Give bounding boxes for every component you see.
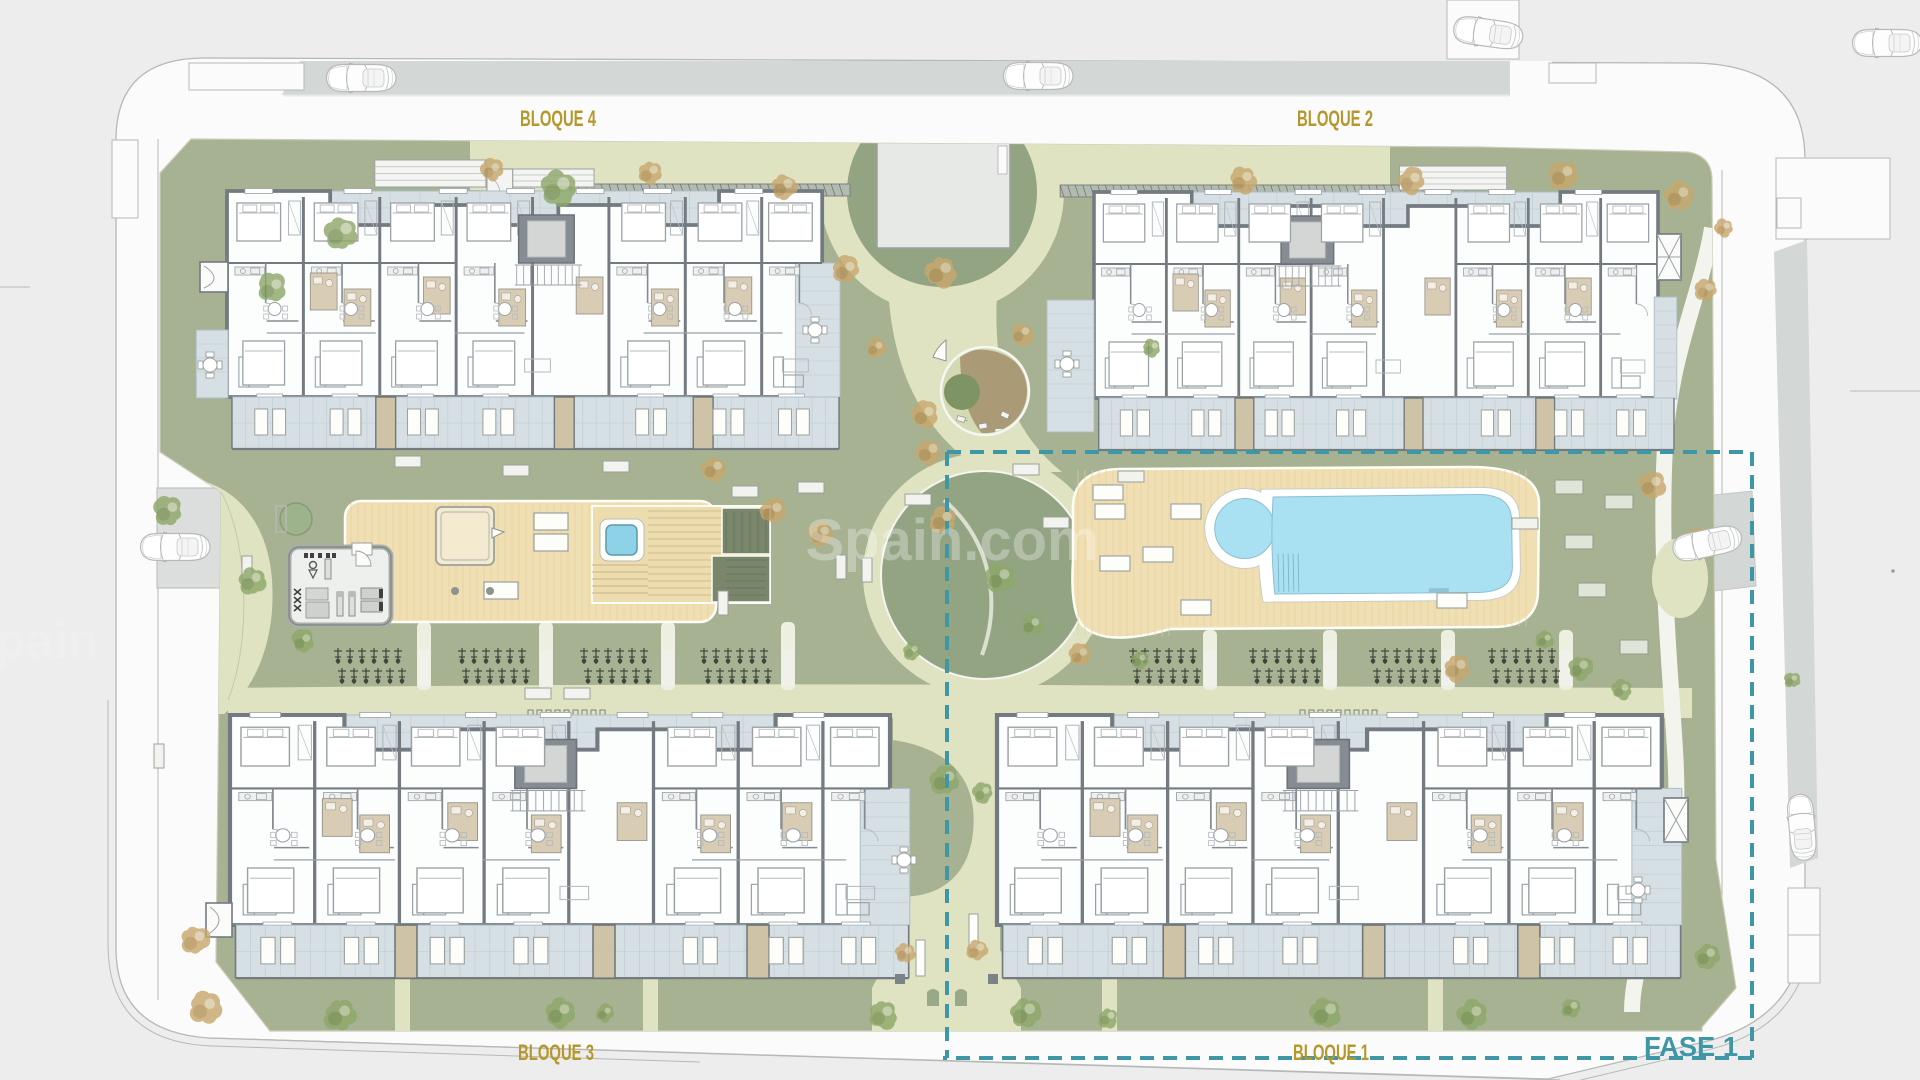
svg-text:BLOQUE 4: BLOQUE 4 bbox=[520, 106, 597, 131]
svg-text:Spain: Spain bbox=[0, 613, 98, 669]
svg-text:FASE 1: FASE 1 bbox=[1644, 1031, 1738, 1062]
svg-text:BLOQUE 1: BLOQUE 1 bbox=[1293, 1040, 1369, 1065]
svg-text:BLOQUE 2: BLOQUE 2 bbox=[1297, 106, 1373, 131]
svg-text:BLOQUE 3: BLOQUE 3 bbox=[518, 1040, 594, 1065]
svg-text:Spain.com: Spain.com bbox=[805, 508, 1098, 573]
